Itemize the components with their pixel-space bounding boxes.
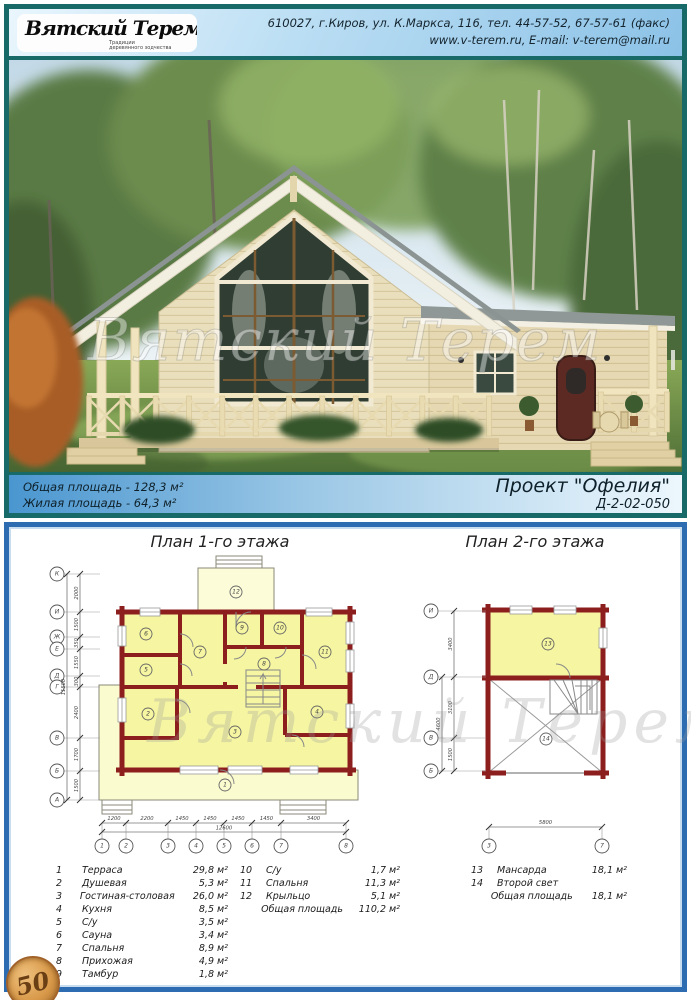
dim-label: 300 [74, 676, 80, 687]
legend-row: 6Сауна3,4 м² [56, 929, 228, 942]
legend-row-number [240, 903, 261, 916]
legend-row-area: 11,3 м² [342, 877, 400, 890]
axis-label: 8 [344, 843, 348, 850]
dim-total: 11500 [61, 678, 67, 695]
contact-web: www.v-terem.ru, E-mail: v-terem@mail.ru [268, 32, 670, 49]
dim-label: 1450 [260, 816, 274, 822]
room-number: 3 [233, 729, 237, 736]
legend-row-name: Спальня [266, 877, 342, 890]
house-photo-scene: Вятский Терем [9, 60, 682, 472]
living-area: Жилая площадь - 64,3 м² [23, 495, 183, 511]
room-number: 2 [146, 711, 150, 718]
room-number: 5 [144, 667, 148, 674]
legend-row-area: 29,8 м² [170, 864, 228, 877]
legend-row-name: Кухня [82, 903, 170, 916]
axis-label: Б [429, 768, 433, 775]
axis-label: В [429, 735, 433, 742]
axis-label: 4 [194, 843, 198, 850]
legend-row-name: Общая площадь [491, 890, 583, 903]
legend-row-number [471, 890, 491, 903]
legend-row: 5С/у3,5 м² [56, 916, 228, 929]
room-number: 6 [144, 631, 148, 638]
axis-label: Ж [53, 634, 61, 641]
floor-plan-2: ИДВБ34003100150046003758001314 [420, 552, 670, 862]
legend-row-name: Прихожая [82, 955, 170, 968]
axis-label: 3 [487, 843, 491, 850]
legend-row-name: Терраса [82, 864, 170, 877]
room-number: 7 [198, 649, 202, 656]
dim-label: 1450 [175, 816, 189, 822]
legend-row-name: С/у [266, 864, 342, 877]
legend-row-area: 110,2 м² [353, 903, 400, 916]
legend-row-name: Мансарда [497, 864, 569, 877]
dim-label: 1500 [448, 747, 454, 761]
legend-total-row: Общая площадь18,1 м² [471, 890, 627, 903]
legend-row-area: 8,9 м² [170, 942, 228, 955]
king-post [290, 176, 297, 202]
legend-column-1: 1Терраса29,8 м²2Душевая5,3 м²3Гостиная-с… [56, 864, 228, 981]
plan2-title: План 2-го этажа [466, 532, 605, 551]
axis-label: 7 [279, 843, 283, 850]
legend-row-number: 7 [56, 942, 82, 955]
axis-label: Д [428, 674, 434, 681]
axis-label: 2 [124, 843, 128, 850]
legend-column-2: 10С/у1,7 м²11Спальня11,3 м²12Крыльцо5,1 … [240, 864, 400, 916]
total-area: Общая площадь - 128,3 м² [23, 479, 183, 495]
contact-block: 610027, г.Киров, ул. К.Маркса, 116, тел.… [268, 15, 670, 49]
legend-row: 2Душевая5,3 м² [56, 877, 228, 890]
rail-post [665, 392, 670, 432]
legend-row-name: Душевая [82, 877, 170, 890]
legend-total-row: Общая площадь110,2 м² [240, 903, 400, 916]
legend-row-number: 10 [240, 864, 266, 877]
axis-label: 3 [166, 843, 170, 850]
project-sheet: Вятский Терем Традиции деревянного зодче… [0, 0, 691, 1000]
dim-label: 350 [74, 637, 80, 648]
header: Вятский Терем Традиции деревянного зодче… [9, 9, 682, 60]
room-number: 4 [315, 709, 319, 716]
legend-row-name: Спальня [82, 942, 170, 955]
legend-row-area: 8,5 м² [170, 903, 228, 916]
legend-row-number: 9 [56, 968, 82, 981]
logo-subtitle-2: деревянного зодчества [109, 46, 189, 51]
legend-row-area: 5,3 м² [170, 877, 228, 890]
badge-number: 50 [13, 965, 52, 1000]
legend-row-name: Второй свет [497, 877, 569, 890]
room-number: 11 [321, 649, 329, 656]
legend-row: 8Прихожая4,9 м² [56, 955, 228, 968]
axis-label: 1 [100, 843, 104, 850]
legend-row: 3Гостиная-столовая26,0 м² [56, 890, 228, 903]
dim-label: 3100 [448, 700, 454, 714]
legend-row-name: Сауна [82, 929, 170, 942]
dim-label: 1550 [74, 655, 80, 669]
legend-row-number: 5 [56, 916, 82, 929]
legend-row-area: 5,1 м² [342, 890, 400, 903]
dim-total: 12600 [216, 826, 233, 832]
legend-row: 14Второй свет [471, 877, 627, 890]
legend-row-area: 1,7 м² [342, 864, 400, 877]
contact-address: 610027, г.Киров, ул. К.Маркса, 116, тел.… [268, 15, 670, 32]
legend-row-number: 2 [56, 877, 82, 890]
room-number: 10 [276, 625, 284, 632]
project-block: Проект "Офелия" Д-2-02-050 [495, 475, 670, 512]
legend-row: 13Мансарда18,1 м² [471, 864, 627, 877]
legend-row: 1Терраса29,8 м² [56, 864, 228, 877]
deck-shadow [79, 448, 499, 452]
axis-label: 7 [600, 843, 604, 850]
info-bar: Общая площадь - 128,3 м² Жилая площадь -… [9, 472, 682, 513]
legend-row-area: 3,4 м² [170, 929, 228, 942]
axis-label: Е [55, 646, 59, 653]
dim-label: 1500 [74, 617, 80, 631]
legend-row: 7Спальня8,9 м² [56, 942, 228, 955]
dim-label: 5800 [539, 820, 553, 826]
legend-row: 9Тамбур1,8 м² [56, 968, 228, 981]
rail-post [487, 396, 492, 436]
legend-row-number: 6 [56, 929, 82, 942]
legend-row-name: Гостиная-столовая [80, 890, 175, 903]
company-logo: Вятский Терем Традиции деревянного зодче… [17, 14, 197, 52]
legend-row-area: 4,9 м² [170, 955, 228, 968]
dim-label: 1450 [203, 816, 217, 822]
logo-title: Вятский Терем [25, 15, 189, 41]
axis-label: 5 [222, 843, 226, 850]
room-number: 14 [542, 736, 550, 743]
room-number: 8 [262, 661, 266, 668]
project-code: Д-2-02-050 [495, 498, 670, 512]
dim-label: 3400 [307, 816, 321, 822]
legend-row-number: 1 [56, 864, 82, 877]
legend-row: 4Кухня8,5 м² [56, 903, 228, 916]
project-name: Проект "Офелия" [495, 475, 670, 498]
plans-section: План 1-го этажа План 2-го этажа [4, 522, 687, 992]
plan2-fills [488, 610, 603, 773]
legend-row-name: С/у [82, 916, 170, 929]
legend-row-area [569, 877, 627, 890]
room-number: 1 [223, 782, 227, 789]
area-summary: Общая площадь - 128,3 м² Жилая площадь -… [23, 479, 183, 511]
axis-label: К [55, 571, 60, 578]
axis-label: И [55, 609, 60, 616]
dim-label: 1500 [74, 778, 80, 792]
legend-row-number: 4 [56, 903, 82, 916]
dim-label: 2400 [74, 705, 80, 719]
floor-plan-1: КИЖЕДГВБА2000150035015503002400170015001… [40, 552, 380, 862]
dim-label: 1200 [107, 816, 121, 822]
photo-watermark: Вятский Терем [87, 306, 603, 374]
dim-label: 3400 [448, 637, 454, 651]
plan1-title: План 1-го этажа [151, 532, 290, 551]
house-photo: Вятский Терем [9, 60, 682, 472]
axis-label: А [54, 797, 59, 804]
wall-lamp-right [604, 355, 610, 361]
legend-row-area: 18,1 м² [583, 890, 627, 903]
room-number: 13 [544, 641, 552, 648]
axis-label: И [429, 608, 434, 615]
legend-row-area: 26,0 м² [175, 890, 228, 903]
legend-row-number: 13 [471, 864, 497, 877]
room-number: 12 [232, 589, 240, 596]
legend-row: 10С/у1,7 м² [240, 864, 400, 877]
legend-row: 12Крыльцо5,1 м² [240, 890, 400, 903]
legend-row-number: 14 [471, 877, 497, 890]
dim-label: 2200 [140, 816, 154, 822]
plan1-fills [99, 568, 358, 800]
axis-label: Б [55, 768, 59, 775]
dim-label: 1700 [74, 747, 80, 761]
legend-row-area: 3,5 м² [170, 916, 228, 929]
room-number: 9 [240, 625, 244, 632]
legend-row: 11Спальня11,3 м² [240, 877, 400, 890]
legend-row-area: 1,8 м² [170, 968, 228, 981]
top-section: Вятский Терем Традиции деревянного зодче… [4, 4, 687, 518]
dim-total: 4600 [436, 717, 442, 731]
axis-label: В [55, 735, 59, 742]
dim-label: 1450 [231, 816, 245, 822]
legend-row-name: Крыльцо [266, 890, 342, 903]
legend-row-number: 8 [56, 955, 82, 968]
axis-label: Д [54, 673, 60, 680]
legend-row-area: 18,1 м² [569, 864, 627, 877]
legend-row-number: 12 [240, 890, 266, 903]
legend-row-number: 3 [56, 890, 80, 903]
axis-label: 6 [250, 843, 254, 850]
legend-column-3: 13Мансарда18,1 м²14Второй светОбщая площ… [471, 864, 627, 903]
legend-row-name: Тамбур [82, 968, 170, 981]
legend-row-name: Общая площадь [261, 903, 353, 916]
dim-label: 2000 [74, 586, 80, 600]
legend-row-number: 11 [240, 877, 266, 890]
